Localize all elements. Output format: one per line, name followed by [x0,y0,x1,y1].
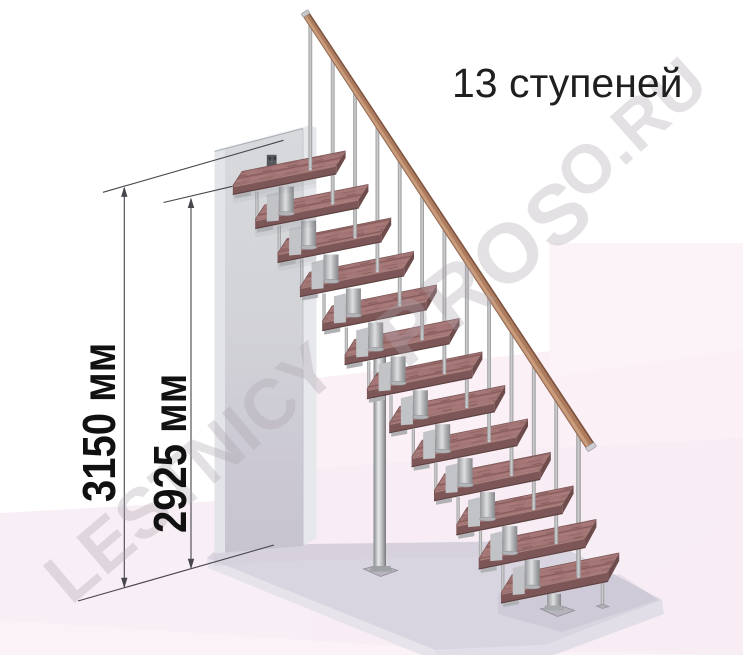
svg-text:13 ступеней: 13 ступеней [452,60,683,106]
svg-text:2925 мм: 2925 мм [145,374,196,533]
svg-text:3150 мм: 3150 мм [74,343,125,502]
